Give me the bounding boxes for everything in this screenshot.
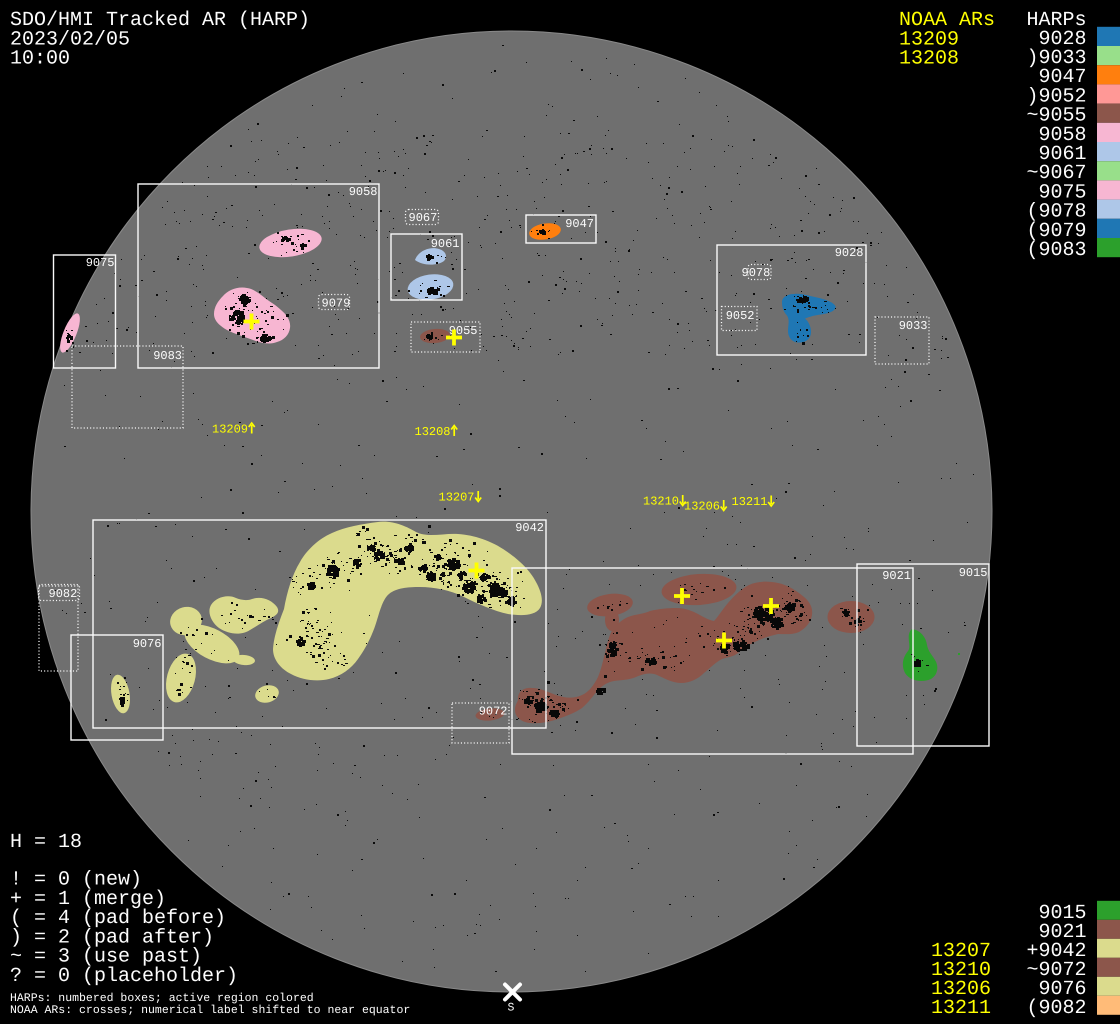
svg-text:9072: 9072: [479, 705, 508, 719]
svg-text:13210: 13210: [643, 495, 679, 509]
svg-text:13208: 13208: [415, 425, 451, 439]
svg-text:9076: 9076: [133, 637, 162, 651]
svg-text:9083: 9083: [153, 349, 182, 363]
svg-text:9033: 9033: [899, 319, 928, 333]
svg-text:13208: 13208: [899, 48, 959, 71]
svg-text:13207: 13207: [439, 491, 475, 505]
svg-text:9028: 9028: [835, 246, 864, 260]
svg-text:13206: 13206: [684, 500, 720, 514]
svg-text:9042: 9042: [515, 521, 544, 535]
svg-text:S: S: [508, 1002, 515, 1015]
svg-text:13209: 13209: [212, 423, 248, 437]
svg-text:(9083: (9083: [1026, 239, 1086, 262]
svg-text:NOAA ARs: crosses; numerical l: NOAA ARs: crosses; numerical label shift…: [10, 1004, 410, 1017]
svg-text:9021: 9021: [882, 569, 911, 583]
svg-text:9082: 9082: [49, 587, 78, 601]
svg-text:9052: 9052: [726, 309, 755, 323]
svg-text:9061: 9061: [431, 237, 460, 251]
svg-text:(9082: (9082: [1026, 997, 1086, 1020]
svg-text:13211: 13211: [931, 997, 991, 1020]
svg-text:9058: 9058: [349, 185, 378, 199]
svg-text:? = 0 (placeholder): ? = 0 (placeholder): [10, 965, 238, 988]
svg-text:13211: 13211: [732, 495, 768, 509]
svg-text:H = 18: H = 18: [10, 831, 82, 854]
svg-text:9015: 9015: [959, 566, 988, 580]
svg-text:10:00: 10:00: [10, 48, 70, 71]
svg-text:9067: 9067: [409, 211, 438, 225]
svg-text:9075: 9075: [86, 256, 115, 270]
svg-text:9079: 9079: [322, 297, 351, 311]
svg-text:9078: 9078: [742, 266, 771, 280]
svg-text:9047: 9047: [565, 217, 594, 231]
